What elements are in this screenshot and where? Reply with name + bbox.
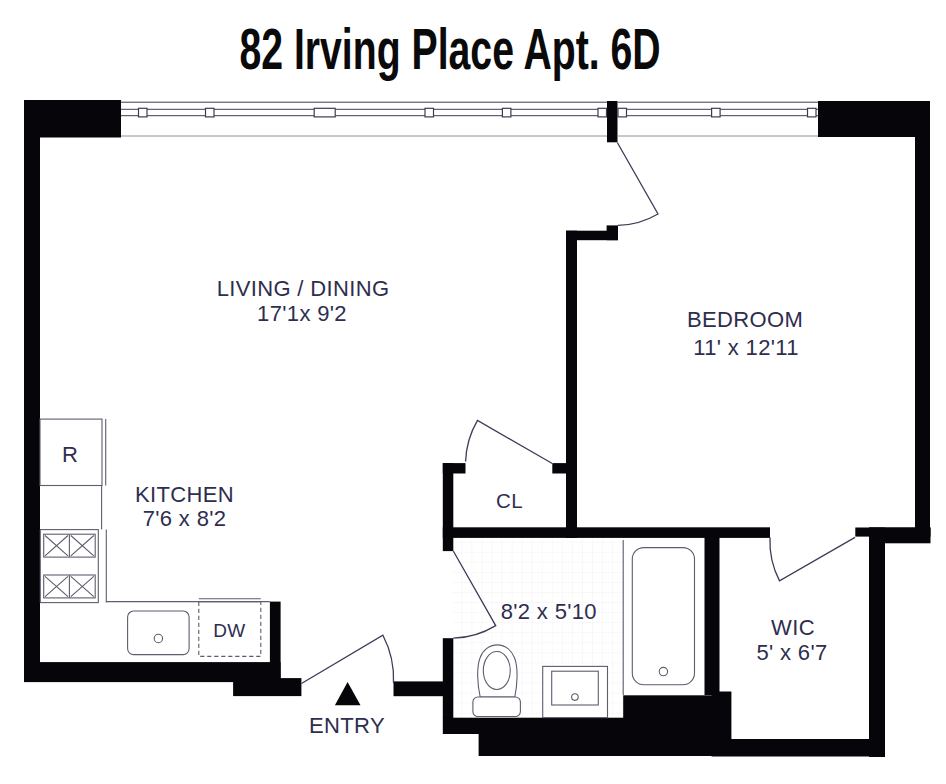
svg-text:82 Irving Place Apt. 6D: 82 Irving Place Apt. 6D bbox=[239, 16, 660, 80]
svg-text:7'6 x 8'2: 7'6 x 8'2 bbox=[143, 506, 227, 531]
svg-text:WIC: WIC bbox=[771, 615, 815, 640]
svg-text:17'1x 9'2: 17'1x 9'2 bbox=[257, 301, 347, 326]
svg-text:BEDROOM: BEDROOM bbox=[687, 307, 803, 332]
svg-text:DW: DW bbox=[213, 620, 245, 641]
svg-text:CL: CL bbox=[496, 489, 523, 512]
svg-text:LIVING / DINING: LIVING / DINING bbox=[217, 276, 390, 301]
svg-text:8'2 x 5'10: 8'2 x 5'10 bbox=[501, 599, 597, 624]
svg-text:KITCHEN: KITCHEN bbox=[135, 482, 234, 507]
svg-text:ENTRY: ENTRY bbox=[309, 713, 385, 738]
svg-text:R: R bbox=[62, 442, 78, 467]
svg-text:11' x 12'11: 11' x 12'11 bbox=[693, 335, 799, 360]
svg-text:5' x 6'7: 5' x 6'7 bbox=[756, 640, 827, 665]
